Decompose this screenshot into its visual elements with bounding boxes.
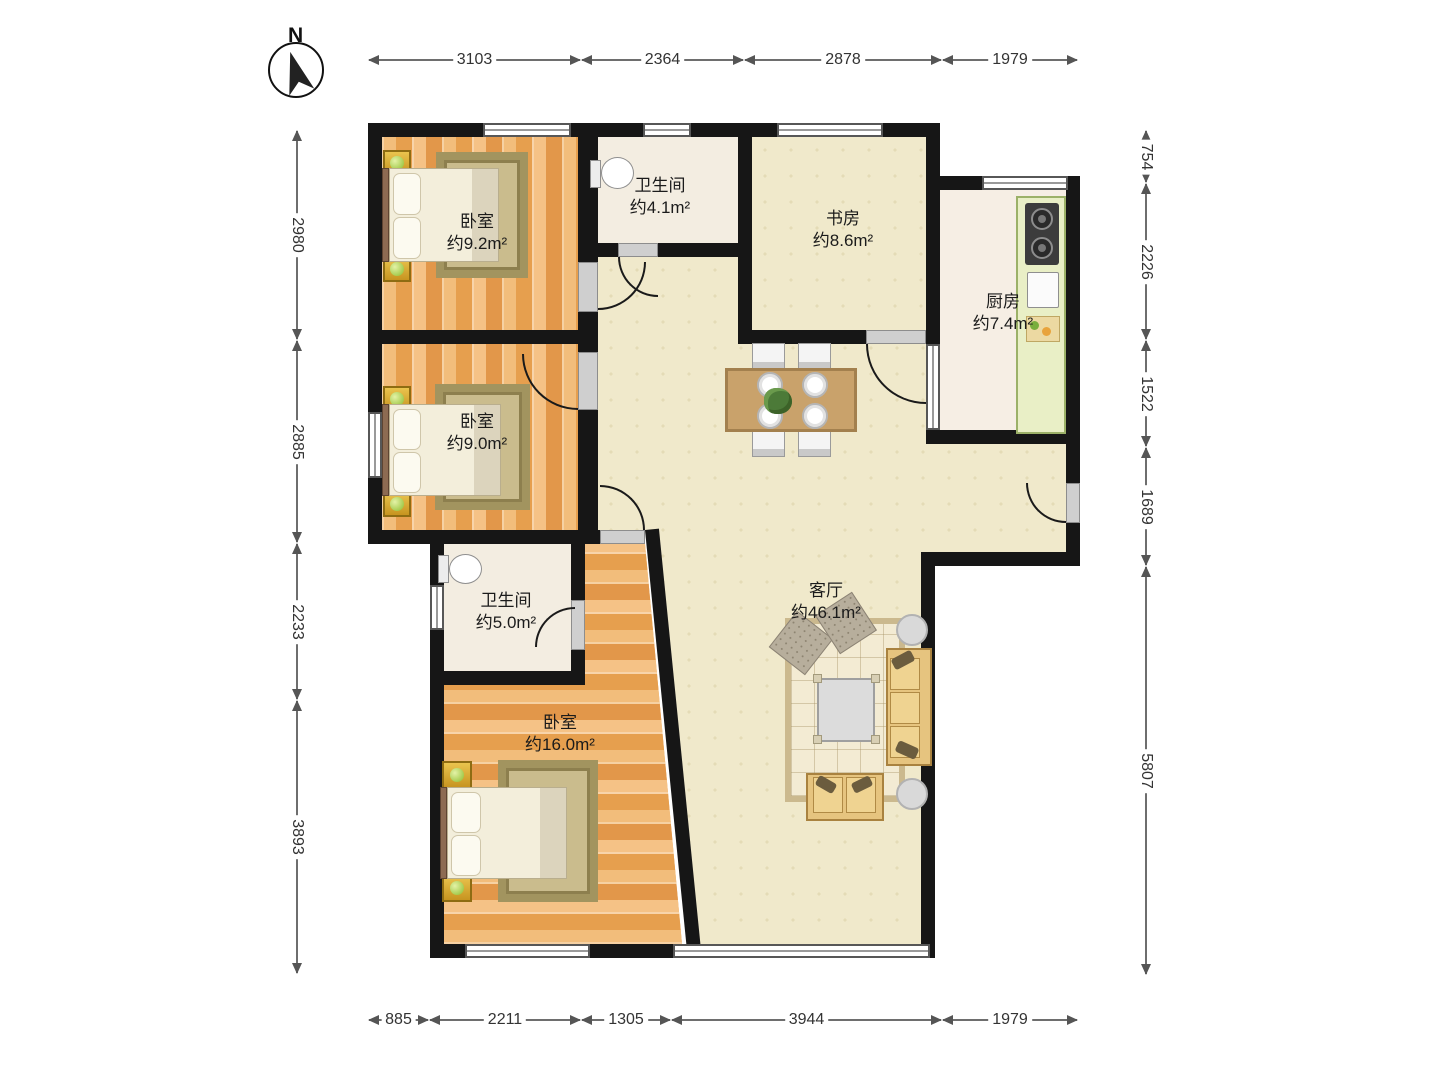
bedroom-3-window — [465, 944, 590, 958]
floor-plan: N — [0, 0, 1440, 1080]
room-name: 厨房 — [973, 291, 1033, 313]
room-name: 卫生间 — [476, 590, 536, 612]
wall-bathroom1-study — [738, 123, 752, 344]
wall-hall-lower — [578, 410, 598, 544]
wall-bathroom2-right-upper — [571, 544, 585, 600]
sofa-cushion — [890, 692, 920, 724]
room-area: 约4.1m² — [630, 197, 690, 219]
bedroom-1-window — [483, 123, 571, 137]
dim-bottom-5: 1979 — [942, 1012, 1078, 1028]
room-area: 约16.0m² — [525, 734, 595, 756]
dim-bottom-4: 3944 — [671, 1012, 942, 1028]
room-name: 卧室 — [447, 211, 507, 233]
stove-burner — [1031, 208, 1053, 230]
fruit — [1042, 327, 1051, 336]
room-area: 约46.1m² — [791, 602, 861, 624]
compass-north-label: N — [288, 24, 303, 48]
bathroom-1-label: 卫生间 约4.1m² — [630, 175, 690, 219]
bedroom-2-bed-headboard — [382, 404, 389, 496]
dim-value: 2364 — [641, 51, 685, 69]
coffee-table-corner — [871, 735, 880, 744]
room-name: 客厅 — [791, 580, 861, 602]
bedroom-2-window — [368, 412, 382, 478]
dim-left-4: 3893 — [289, 700, 305, 974]
living-room-label: 客厅 约46.1m² — [791, 580, 861, 624]
dim-bottom-3: 1305 — [581, 1012, 671, 1028]
study-window — [777, 123, 883, 137]
wall-hall-upper — [578, 123, 598, 262]
bedroom-3-bed-headboard — [440, 787, 447, 879]
dim-right-3: 1522 — [1138, 340, 1154, 447]
coffee-table-corner — [813, 674, 822, 683]
dim-value: 2980 — [288, 213, 306, 257]
room-area: 约7.4m² — [973, 313, 1033, 335]
bedroom-3-nightstand-top — [442, 761, 472, 789]
room-area: 约9.0m² — [447, 433, 507, 455]
dim-value: 3893 — [288, 815, 306, 859]
dim-value: 1522 — [1137, 372, 1155, 416]
dim-value: 2233 — [288, 600, 306, 644]
dim-value: 5807 — [1137, 749, 1155, 793]
side-table — [896, 614, 928, 646]
bedroom-3-pillow — [451, 835, 481, 876]
bedroom-3-label: 卧室 约16.0m² — [525, 712, 595, 756]
dim-value: 2226 — [1137, 240, 1155, 284]
room-name: 卧室 — [525, 712, 595, 734]
room-area: 约9.2m² — [447, 233, 507, 255]
bedroom-1-door — [578, 262, 598, 312]
dim-value: 2211 — [484, 1011, 526, 1029]
dining-chair — [752, 430, 785, 457]
coffee-table — [817, 678, 875, 742]
flower-centerpiece-icon — [764, 388, 792, 414]
bathroom-2-toilet-bowl — [449, 554, 482, 584]
dim-value: 3944 — [785, 1011, 829, 1029]
bathroom-2-toilet-icon — [438, 555, 449, 583]
room-name: 卫生间 — [630, 175, 690, 197]
bedroom-3-pillow — [451, 792, 481, 833]
coffee-table-corner — [813, 735, 822, 744]
stove-burner — [1031, 237, 1053, 259]
dim-value: 885 — [381, 1011, 416, 1029]
bedroom-2-pillow — [393, 452, 421, 493]
dining-chair — [798, 430, 831, 457]
kitchen-window — [982, 176, 1068, 190]
entry-door — [1066, 483, 1080, 523]
dim-right-1: 754 — [1138, 130, 1154, 183]
room-area: 约5.0m² — [476, 612, 536, 634]
dim-right-5: 5807 — [1138, 566, 1154, 975]
dim-top-2: 2364 — [581, 52, 744, 68]
dim-top-4: 1979 — [942, 52, 1078, 68]
dining-chair — [798, 343, 831, 370]
dim-value: 2885 — [288, 420, 306, 464]
side-table — [896, 778, 928, 810]
wall-study-right — [926, 123, 940, 344]
dim-left-1: 2980 — [289, 130, 305, 340]
wall-bedroom3-door-jamb — [585, 530, 600, 544]
dim-value: 2878 — [821, 51, 865, 69]
dim-left-2: 2885 — [289, 340, 305, 543]
kitchen-sliding-door — [926, 344, 940, 430]
dim-top-1: 3103 — [368, 52, 581, 68]
bedroom-2-door — [578, 352, 598, 410]
kitchen-label: 厨房 约7.4m² — [973, 291, 1033, 335]
dim-bottom-1: 885 — [368, 1012, 429, 1028]
plate — [802, 403, 828, 429]
bedroom-2-label: 卧室 约9.0m² — [447, 411, 507, 455]
bathroom-1-toilet-icon — [590, 160, 601, 188]
room-name: 书房 — [813, 208, 873, 230]
coffee-table-corner — [871, 674, 880, 683]
bedroom-1-label: 卧室 约9.2m² — [447, 211, 507, 255]
study-label: 书房 约8.6m² — [813, 208, 873, 252]
wall-study-bottom-left — [738, 330, 866, 344]
bedroom-1-pillow — [393, 217, 421, 259]
bathroom-1-window — [643, 123, 691, 137]
wall-bedroom2-bottom — [368, 530, 598, 544]
plate — [802, 372, 828, 398]
wall-bathroom1-bottom-left — [578, 243, 618, 257]
dining-chair — [752, 343, 785, 370]
room-name: 卧室 — [447, 411, 507, 433]
dim-right-2: 2226 — [1138, 183, 1154, 340]
bedroom-1-pillow — [393, 173, 421, 215]
dim-value: 754 — [1137, 139, 1155, 174]
dim-top-3: 2878 — [744, 52, 942, 68]
dim-bottom-2: 2211 — [429, 1012, 581, 1028]
dim-value: 1305 — [604, 1011, 648, 1029]
living-room-window — [673, 944, 930, 958]
wall-bathroom2-bottom — [430, 671, 585, 685]
bathroom-2-label: 卫生间 约5.0m² — [476, 590, 536, 634]
dim-value: 1979 — [988, 1011, 1032, 1029]
dim-value: 1689 — [1137, 485, 1155, 529]
bedroom-3-door — [600, 530, 645, 544]
room-area: 约8.6m² — [813, 230, 873, 252]
dim-right-4: 1689 — [1138, 447, 1154, 566]
bathroom-2-window — [430, 585, 444, 630]
dim-left-3: 2233 — [289, 543, 305, 700]
wall-step-right — [921, 552, 1080, 566]
dim-value: 3103 — [453, 51, 497, 69]
wall-bedroom1-bedroom2 — [368, 330, 598, 344]
bedroom-1-bed-headboard — [382, 168, 389, 262]
bathroom-1-door — [618, 243, 658, 257]
dim-value: 1979 — [988, 51, 1032, 69]
study-door — [866, 330, 926, 344]
bedroom-2-pillow — [393, 409, 421, 450]
